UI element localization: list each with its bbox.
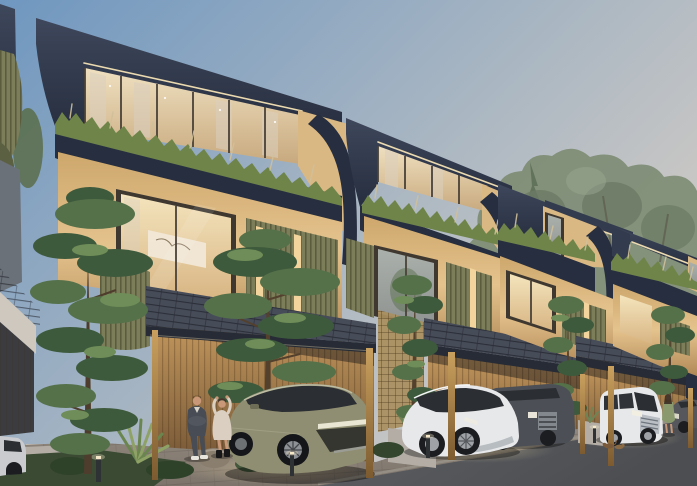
car-white-crossover [402, 385, 520, 460]
man-sneakers [191, 456, 199, 460]
unit2-louvre-lit-slot [470, 268, 476, 330]
car-olive-suv [225, 384, 375, 484]
man-head [193, 397, 201, 405]
carport-post-1a [152, 330, 158, 480]
carport-post-3a [608, 366, 614, 466]
car-partial-right [672, 399, 697, 433]
olive-suv-mirror [250, 404, 259, 409]
scene-render: Row of modern tropical townhouses at dus… [0, 0, 697, 486]
man-crossed-arms [188, 416, 206, 426]
carport-post-1b [366, 348, 373, 478]
carport-post-2a [448, 352, 455, 460]
woman-boots [216, 450, 222, 458]
carport-post-3b [688, 388, 693, 448]
dark-suv-headlight [528, 412, 537, 418]
car-white-van [596, 387, 668, 446]
townhouse-dusk-render: Row of modern tropical townhouses at dus… [0, 0, 697, 486]
carport-post-2b [580, 374, 585, 454]
car-partial-left [0, 436, 26, 476]
woman-green-dress [662, 402, 675, 423]
woman-head [218, 400, 226, 408]
